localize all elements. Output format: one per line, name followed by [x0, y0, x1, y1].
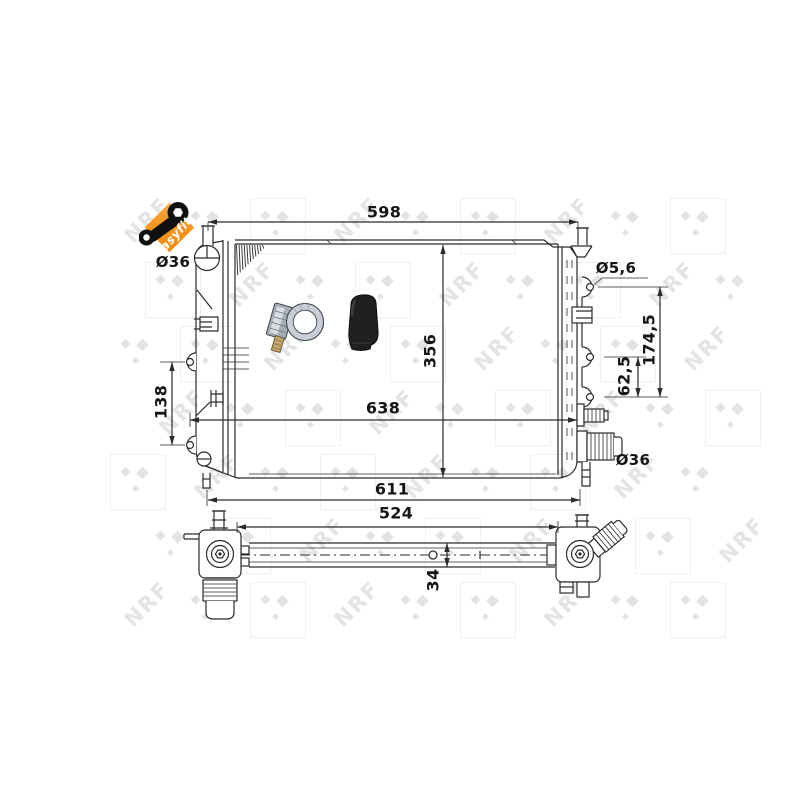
core-fin-hatching: [237, 245, 264, 275]
right-mount-tabs: [582, 277, 594, 407]
right-fin-marks: [567, 260, 572, 460]
dim-right-mount-span: 174,5: [640, 314, 659, 366]
rubber-hose: [349, 295, 378, 351]
dim-overall-width: 638: [366, 399, 400, 418]
dim-lower-width: 611: [375, 480, 409, 499]
dim-bottom-width: 524: [379, 504, 413, 523]
dim-right-mount-spacing: 62,5: [615, 356, 634, 397]
small-threaded-stub: [577, 404, 608, 426]
dim-core-height: 356: [421, 334, 440, 368]
dim-left-mount-spacing: 138: [152, 385, 171, 419]
left-clip-detail: [196, 390, 223, 416]
hose-clamp: [266, 303, 323, 353]
easyfit-badge: easyfit: [139, 199, 203, 263]
drain-plug: [197, 452, 211, 466]
top-right-stud: [571, 228, 592, 257]
dim-mount-hole-diameter: Ø5,6: [596, 259, 637, 277]
dim-outlet-diameter: Ø36: [616, 451, 651, 469]
left-mount-tabs: [187, 353, 197, 454]
left-bottom-pin: [203, 473, 210, 488]
bottom-right-connector: [547, 515, 630, 597]
right-bottom-pin: [582, 462, 590, 486]
left-bracket-detail: [194, 317, 218, 331]
front-view: [187, 226, 623, 488]
right-connector-block: [572, 307, 592, 323]
dim-bottom-depth: 34: [424, 569, 443, 592]
dim-top-width: 598: [367, 203, 401, 222]
radiator-technical-drawing: NRFNRFNRFNRFNRFNRFNRFNRFNRFNRFNRFNRFNRFN…: [0, 0, 800, 800]
